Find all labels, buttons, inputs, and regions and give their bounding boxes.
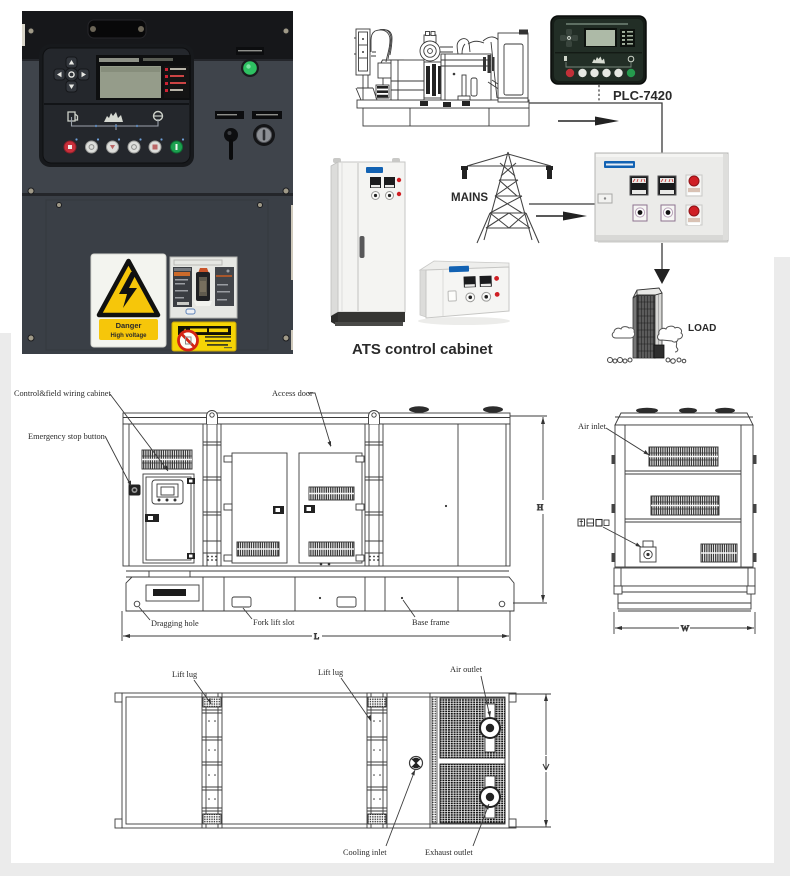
svg-text:Lift lug: Lift lug [318, 668, 343, 677]
svg-text:Access door: Access door [272, 389, 313, 398]
svg-text:Danger: Danger [116, 321, 142, 330]
svg-text:Lift lug: Lift lug [172, 670, 197, 679]
svg-text:Cooling inlet: Cooling inlet [343, 848, 387, 857]
svg-text:LOAD: LOAD [688, 323, 716, 334]
svg-text:Emergency stop button: Emergency stop button [28, 432, 106, 441]
svg-text:Base frame: Base frame [412, 618, 450, 627]
svg-text:High voltage: High voltage [110, 333, 147, 339]
svg-text:H: H [537, 502, 543, 512]
svg-text:PLC-7420: PLC-7420 [613, 88, 672, 103]
svg-text:ATS control cabinet: ATS control cabinet [352, 341, 493, 358]
svg-text:W: W [681, 623, 689, 633]
svg-text:Air outlet: Air outlet [450, 665, 483, 674]
svg-text:Exhaust outlet: Exhaust outlet [425, 848, 473, 857]
svg-text:Control&field wiring cabinet: Control&field wiring cabinet [14, 389, 111, 398]
svg-text:MAINS: MAINS [451, 192, 488, 204]
svg-text:Fork lift slot: Fork lift slot [253, 618, 295, 627]
svg-text:Air inlet: Air inlet [578, 422, 607, 431]
svg-text:L: L [314, 631, 319, 641]
svg-text:Dragging hole: Dragging hole [151, 619, 199, 628]
